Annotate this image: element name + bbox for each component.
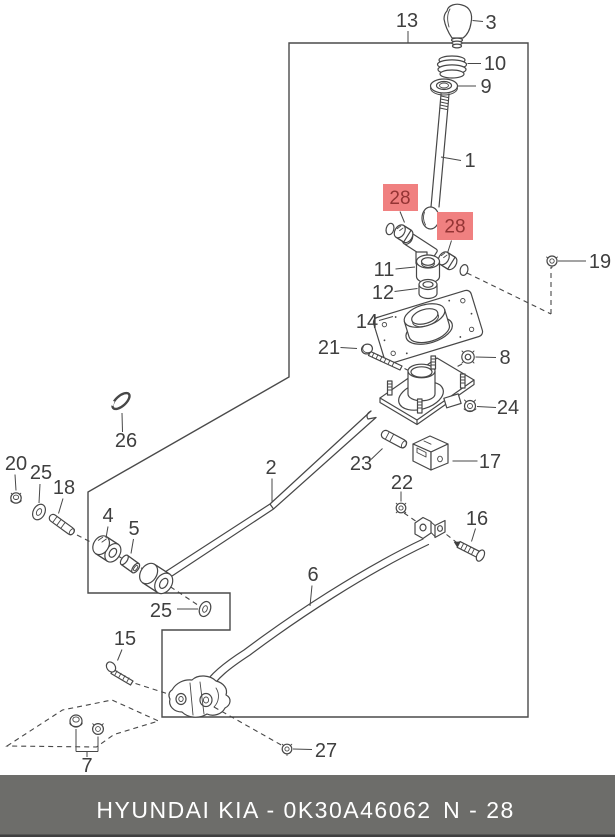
- highlight-28-left: 28: [383, 184, 418, 211]
- part-label-14: 14: [356, 311, 378, 333]
- bushing-12-drawing: [419, 280, 437, 299]
- exploded-parts-diagram: 28 28 13 3 10 9 1 19 11 12 14 21 8 24 26…: [0, 0, 615, 837]
- part-label-9: 9: [480, 76, 491, 98]
- footer-bar: HYUNDAI KIA - 0K30A46062 N - 28: [0, 775, 615, 837]
- part-label-3: 3: [485, 12, 496, 34]
- part-label-23: 23: [350, 453, 372, 475]
- footer-part-number: HYUNDAI KIA - 0K30A46062: [96, 797, 431, 823]
- part-label-8: 8: [499, 347, 510, 369]
- part-label-19: 19: [589, 251, 611, 273]
- footer-page-ref: N - 28: [443, 797, 515, 823]
- bushing-11-drawing: [417, 255, 440, 283]
- part-label-11: 11: [374, 259, 395, 281]
- part-label-28-right: 28: [444, 217, 465, 238]
- part-label-25b: 25: [150, 600, 172, 622]
- part-label-2: 2: [265, 457, 276, 479]
- part-label-17: 17: [479, 451, 501, 473]
- part-label-15: 15: [114, 628, 136, 650]
- part-label-13: 13: [396, 10, 418, 32]
- part-label-16: 16: [466, 508, 488, 530]
- part-label-12: 12: [372, 282, 394, 304]
- highlight-28-right: 28: [437, 212, 473, 240]
- part-label-27: 27: [315, 740, 337, 762]
- part-label-7: 7: [81, 755, 92, 777]
- parts-catalog-page: 28 28 13 3 10 9 1 19 11 12 14 21 8 24 26…: [0, 0, 615, 837]
- part-label-24: 24: [497, 397, 519, 419]
- part-label-20: 20: [5, 453, 27, 475]
- part-label-21: 21: [318, 337, 340, 359]
- part-label-22: 22: [391, 472, 413, 494]
- nut-24-drawing: [464, 400, 476, 412]
- diagram-background: [0, 0, 615, 837]
- nut-20-drawing: [11, 493, 21, 503]
- part-label-28-left: 28: [389, 188, 410, 209]
- grommet-ring-drawing: [431, 79, 458, 95]
- part-label-10: 10: [484, 53, 506, 75]
- part-label-6: 6: [307, 564, 318, 586]
- part-label-1: 1: [464, 150, 475, 172]
- boot-spring-drawing: [438, 56, 467, 78]
- part-label-5: 5: [128, 518, 139, 540]
- part-label-18: 18: [53, 477, 75, 499]
- part-label-26: 26: [115, 430, 137, 452]
- part-label-25a: 25: [30, 462, 52, 484]
- part-label-4: 4: [102, 505, 113, 527]
